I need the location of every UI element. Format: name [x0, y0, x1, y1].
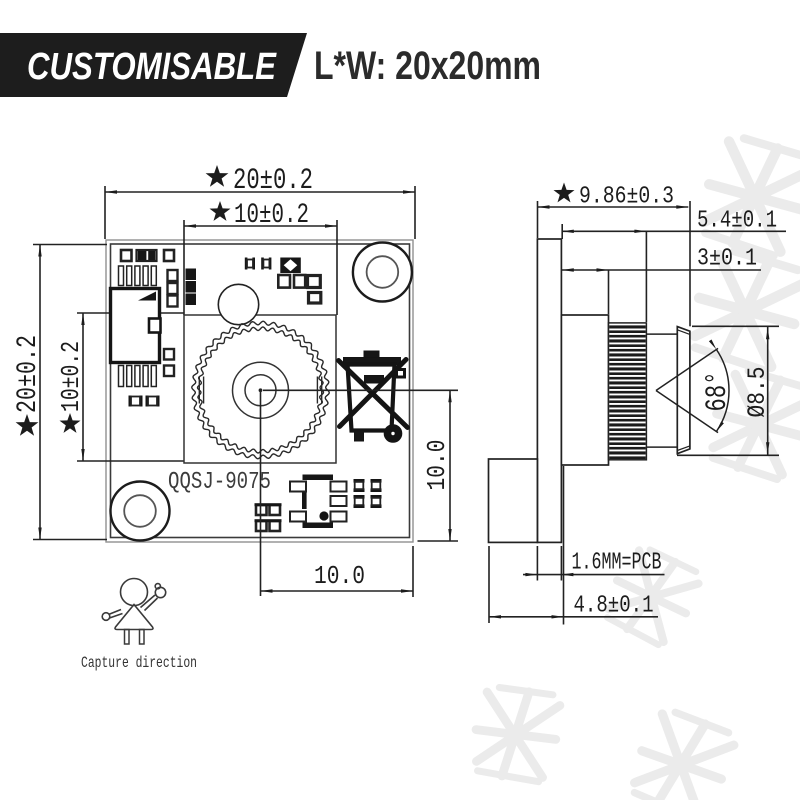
svg-text:CUSTOMISABLE: CUSTOMISABLE: [27, 46, 277, 88]
svg-text:3±0.1: 3±0.1: [697, 246, 757, 273]
svg-text:10±0.2: 10±0.2: [56, 341, 86, 412]
svg-text:4.8±0.1: 4.8±0.1: [574, 593, 654, 620]
svg-text:5.4±0.1: 5.4±0.1: [697, 208, 777, 235]
svg-text:10±0.2: 10±0.2: [234, 200, 309, 231]
svg-text:20±0.2: 20±0.2: [233, 164, 313, 198]
svg-text:Ø8.5: Ø8.5: [743, 367, 772, 418]
svg-text:Capture direction: Capture direction: [81, 654, 197, 672]
svg-text:10.0: 10.0: [422, 440, 452, 491]
svg-text:1.6MM=PCB: 1.6MM=PCB: [572, 550, 662, 577]
svg-text:10.0: 10.0: [314, 561, 365, 591]
svg-text:QQSJ-9075: QQSJ-9075: [168, 469, 271, 496]
svg-text:20±0.2: 20±0.2: [13, 335, 44, 413]
svg-text:68°: 68°: [701, 372, 735, 412]
svg-text:9.86±0.3: 9.86±0.3: [579, 184, 674, 211]
svg-text:L*W: 20x20mm: L*W: 20x20mm: [314, 44, 541, 88]
